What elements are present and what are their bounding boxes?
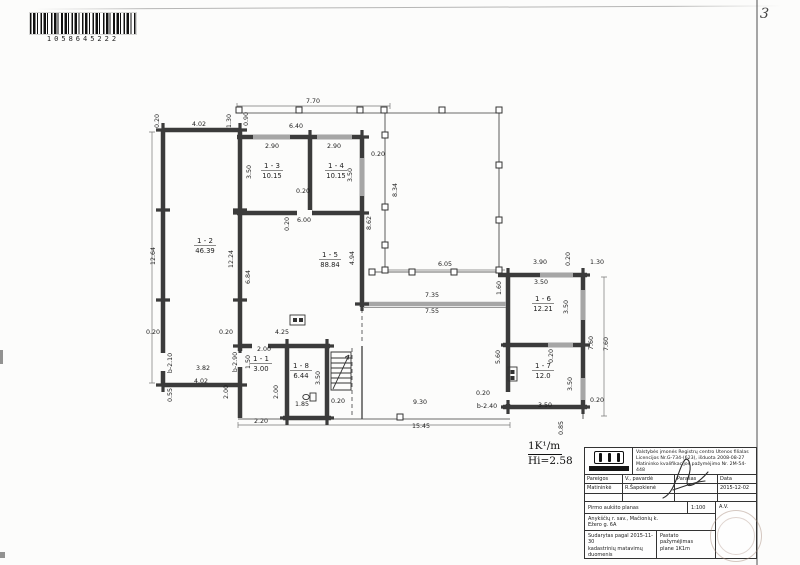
round-stamp-inner [717,517,755,555]
dimension-label: 0.20 [476,390,490,397]
dimension-label: 1.60 [496,281,503,295]
terrace-post [382,267,388,273]
dimension-label: 2.00 [223,385,230,399]
logo-emblem-icon [594,451,624,464]
dimension-label: 6.00 [297,217,311,224]
dimension-label: 2.00 [257,346,271,353]
dimension-label: 4.25 [275,329,289,336]
dimension-label: 6.40 [289,123,303,130]
stairs-symbol [331,352,351,390]
footer-right-2: plane 1K1m [660,546,713,552]
dimension-label: 1.50 [245,355,252,369]
dimension-label: 6.84 [245,270,252,284]
dimension-label: 15.45 [412,423,430,430]
terrace-post [496,162,502,168]
dimension-label: 2.90 [327,143,341,150]
dashed-boundaries [352,309,362,416]
room-number: 1 - 4 [328,162,344,170]
room-area: 88.84 [320,261,339,269]
footer-left-1: Sudarytas pagal 2015-11-30 [588,533,654,546]
dimension-label: 4.02 [194,378,208,385]
footer-left-2: kadastrinių matavimų duomenis [588,546,654,559]
terrace-post [496,217,502,223]
building-marking: 1K¹/m [528,440,562,455]
terrace-post [236,107,242,113]
dimension-label: 3.50 [538,402,552,409]
terrace-post [382,242,388,248]
dimension-label: 0.85 [558,421,565,435]
room-area: 12.0 [535,372,550,380]
room-number: 1 - 2 [197,237,213,245]
building-height: Hi=2.58 [528,455,573,467]
dimension-label: 3.50 [347,168,354,182]
room-area: 3.00 [253,365,268,373]
dimension-label: 4.94 [349,251,356,265]
terrace-post [382,204,388,210]
building-marking-note: 1K¹/m Hi=2.58 [528,440,573,468]
room-number: 1 - 3 [264,162,280,170]
dimension-label: 0.20 [284,217,291,231]
dimension-label: b-2.90 [232,352,239,372]
terrace-post [381,107,387,113]
terrace-post [496,107,502,113]
terrace-post [439,107,445,113]
terrace-outline [238,113,583,419]
terrace-post [409,269,415,275]
terrace-post [496,267,502,273]
room-area: 12.21 [533,305,552,313]
dimension-label: 7.55 [425,308,439,315]
dimension-label: 12.24 [228,250,235,268]
dimension-label: 1.85 [295,401,309,408]
dimension-label: 12.64 [150,247,157,265]
dimension-label: 0.20 [548,349,555,363]
room-number: 1 - 8 [293,362,309,370]
stove-icon [290,315,305,325]
door-openings [163,213,508,404]
dimension-label: 0.20 [371,151,385,158]
col-position: Pareigos [585,475,623,483]
dimension-label: b-2.10 [167,353,174,373]
dimension-label: 7.70 [306,98,320,105]
terrace-post [382,132,388,138]
terrace-post [451,269,457,275]
terrace-posts [236,107,502,420]
dimension-label: 8.62 [366,216,373,230]
dimension-label: 0.20 [219,329,233,336]
toilet-icon [303,393,316,401]
dimension-label: 2.90 [265,143,279,150]
company-logo [585,448,633,474]
dimension-label: 0.20 [331,398,345,405]
empty-cell [585,494,623,501]
terrace-post [369,269,375,275]
terrace-post [357,107,363,113]
dimension-label: 0.90 [243,112,250,126]
room-area: 46.39 [195,247,214,255]
dimension-label: 0.20 [565,252,572,266]
address-line-2: Ežero g. 6A [588,522,712,528]
dimension-label: 3.82 [196,365,210,372]
room-number: 1 - 1 [253,355,269,363]
room-number: 1 - 7 [535,362,551,370]
dimension-label: 5.60 [495,350,502,364]
dimension-label: 1.30 [590,259,604,266]
dimension-label: 4.02 [192,121,206,128]
dimension-label: 9.30 [413,399,427,406]
terrace-post [296,107,302,113]
windows [253,137,583,400]
dimension-label: 7.35 [425,292,439,299]
footer-right-1: Pastato pažymėjimas [660,533,713,546]
dimension-label: b-2.40 [477,403,497,410]
room-number: 1 - 5 [322,251,338,259]
dimension-label: 3.50 [567,377,574,391]
dimension-label: 7.60 [588,336,595,350]
dimension-label: 3.50 [563,300,570,314]
scanned-floor-plan-page: 1058645222 3 [0,0,800,565]
dimension-label: 1.30 [226,114,233,128]
dimension-label: 8.34 [392,183,399,197]
dimension-label: 0.55 [167,388,174,402]
dimension-label: 0.20 [590,397,604,404]
dimension-label: 2.20 [254,418,268,425]
dimension-label: 2.00 [273,385,280,399]
dimension-label: 0.20 [154,114,161,128]
logo-band [589,466,629,471]
dimension-label: 6.05 [438,261,452,268]
terrace-post [397,414,403,420]
dimension-label: 0.20 [146,329,160,336]
room-area: 10.15 [262,172,281,180]
surveyor-position: Matininkė [585,484,623,493]
signature [655,452,725,507]
room-area: 6.44 [293,372,308,380]
room-number: 1 - 6 [535,295,551,303]
dimension-label: 3.50 [246,165,253,179]
dimension-label: 3.50 [534,279,548,286]
dimension-label: 7.60 [603,337,610,351]
dimension-label: 3.50 [315,371,322,385]
room-area: 10.15 [326,172,345,180]
dimension-label: 3.90 [533,259,547,266]
dimension-label: 0.20 [296,188,310,195]
